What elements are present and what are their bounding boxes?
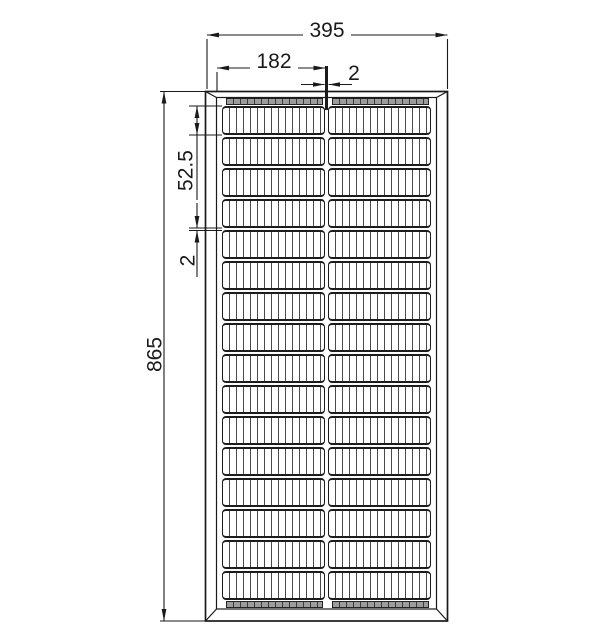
solar-cell [222,509,325,538]
dim-label-center-gap: 2 [344,63,364,84]
busbar-bottom-left [226,601,323,608]
solar-cell [222,571,325,600]
arrowhead-right-icon [436,33,448,38]
arrowhead-left-icon [217,66,229,71]
solar-cell [328,540,431,569]
solar-cell [222,447,325,476]
solar-cell [222,478,325,507]
solar-cell [222,416,325,445]
solar-cell [222,261,325,290]
solar-cell [328,447,431,476]
dim-label-row-gap: 2 [178,246,199,276]
arrowhead-up-icon [195,106,200,118]
solar-cell [222,385,325,414]
arrowhead-up-icon [195,231,200,243]
dim-label-cell-height: 52.5 [176,139,197,203]
solar-cell [222,323,325,352]
arrowhead-down-icon [195,216,200,228]
solar-cell [328,230,431,259]
solar-cell [328,509,431,538]
solar-cell [328,292,431,321]
arrowhead-right-icon [313,82,325,86]
solar-cell [328,385,431,414]
solar-cell [222,137,325,166]
solar-cell [328,323,431,352]
solar-cell [328,199,431,228]
solar-cell [328,478,431,507]
solar-cell [328,571,431,600]
arrowhead-down-icon [162,609,167,621]
solar-cell [328,137,431,166]
solar-cell [222,168,325,197]
solar-cell [328,416,431,445]
solar-cell [328,168,431,197]
arrowhead-down-icon [195,123,200,135]
dim-label-overall-height: 865 [145,323,166,387]
drawing-canvas: 395 182 2 865 52.5 2 [0,0,600,640]
solar-cell [328,261,431,290]
busbar-top-left [226,98,323,105]
cell-column-left [222,106,325,600]
solar-cell [328,354,431,383]
solar-cell [328,106,431,135]
busbar-top-right [332,98,429,105]
arrowhead-left-icon [329,82,341,86]
solar-cell [222,106,325,135]
arrowhead-up-icon [162,92,167,104]
solar-cell [222,230,325,259]
solar-cell [222,292,325,321]
busbar-bottom-right [332,601,429,608]
dim-label-column-width: 182 [250,51,298,72]
solar-cell [222,199,325,228]
arrowhead-right-icon [314,66,326,71]
solar-cell [222,540,325,569]
solar-cell [222,354,325,383]
cell-column-right [328,106,431,600]
dim-label-overall-width: 395 [303,20,351,41]
arrowhead-left-icon [207,33,219,38]
